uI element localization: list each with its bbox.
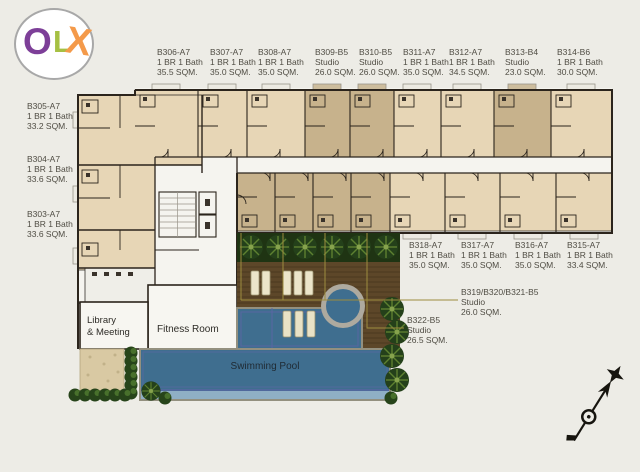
unit-type: Studio xyxy=(505,57,546,67)
unit-type: 1 BR 1 Bath xyxy=(27,164,73,174)
compass-icon xyxy=(563,361,629,450)
unit-type: Studio xyxy=(461,297,539,307)
unit-type: 1 BR 1 Bath xyxy=(403,57,449,67)
unit-type: 1 BR 1 Bath xyxy=(157,57,203,67)
unit-type: 1 BR 1 Bath xyxy=(27,111,73,121)
fitness-room-area xyxy=(148,285,237,349)
unit-area: 23.0 SQM. xyxy=(505,67,546,77)
planter-row xyxy=(237,233,400,262)
unit-type: 1 BR 1 Bath xyxy=(557,57,603,67)
unit-label-b322: B322-B5 Studio 26.5 SQM. xyxy=(407,315,448,345)
unit-label-b318: B318-A7 1 BR 1 Bath 35.0 SQM. xyxy=(409,240,455,270)
unit-id: B310-B5 xyxy=(359,47,400,57)
unit-label-b309: B309-B5 Studio 26.0 SQM. xyxy=(315,47,356,77)
unit-area: 26.0 SQM. xyxy=(461,307,539,317)
unit-id: B322-B5 xyxy=(407,315,448,325)
unit-type: 1 BR 1 Bath xyxy=(515,250,561,260)
swimming-pool-label: Swimming Pool xyxy=(200,361,330,372)
unit-label-b307: B307-A7 1 BR 1 Bath 35.0 SQM. xyxy=(210,47,256,77)
unit-area: 33.6 SQM. xyxy=(27,229,73,239)
unit-label-b315: B315-A7 1 BR 1 Bath 33.4 SQM. xyxy=(567,240,613,270)
unit-id: B316-A7 xyxy=(515,240,561,250)
unit-id: B312-A7 xyxy=(449,47,495,57)
unit-area: 35.0 SQM. xyxy=(210,67,256,77)
unit-type: Studio xyxy=(359,57,400,67)
unit-label-b304: B304-A7 1 BR 1 Bath 33.6 SQM. xyxy=(27,154,73,184)
unit-label-b308: B308-A7 1 BR 1 Bath 35.0 SQM. xyxy=(258,47,304,77)
unit-id: B304-A7 xyxy=(27,154,73,164)
unit-area: 34.5 SQM. xyxy=(449,67,495,77)
unit-label-b303: B303-A7 1 BR 1 Bath 33.6 SQM. xyxy=(27,209,73,239)
library-line2: & Meeting xyxy=(87,327,130,339)
unit-id: B317-A7 xyxy=(461,240,507,250)
unit-id: B306-A7 xyxy=(157,47,203,57)
unit-label-b305: B305-A7 1 BR 1 Bath 33.2 SQM. xyxy=(27,101,73,131)
unit-id: B308-A7 xyxy=(258,47,304,57)
in-pool-loungers xyxy=(283,311,315,337)
unit-label-b317: B317-A7 1 BR 1 Bath 35.0 SQM. xyxy=(461,240,507,270)
unit-area: 35.0 SQM. xyxy=(461,260,507,270)
library-meeting-label: Library & Meeting xyxy=(87,315,130,339)
unit-type: 1 BR 1 Bath xyxy=(449,57,495,67)
unit-area: 33.2 SQM. xyxy=(27,121,73,131)
unit-id: B318-A7 xyxy=(409,240,455,250)
unit-area: 33.4 SQM. xyxy=(567,260,613,270)
unit-area: 33.6 SQM. xyxy=(27,174,73,184)
unit-type: 1 BR 1 Bath xyxy=(409,250,455,260)
unit-type: 1 BR 1 Bath xyxy=(258,57,304,67)
unit-type: Studio xyxy=(315,57,356,67)
unit-area: 35.5 SQM. xyxy=(157,67,203,77)
unit-id: B319/B320/B321-B5 xyxy=(461,287,539,297)
unit-type: 1 BR 1 Bath xyxy=(27,219,73,229)
unit-id: B313-B4 xyxy=(505,47,546,57)
unit-area: 26.5 SQM. xyxy=(407,335,448,345)
olx-letter-o: O xyxy=(23,23,52,60)
unit-label-b319-b320-b321: B319/B320/B321-B5 Studio 26.0 SQM. xyxy=(461,287,539,317)
unit-id: B309-B5 xyxy=(315,47,356,57)
library-line1: Library xyxy=(87,315,130,327)
unit-label-b316: B316-A7 1 BR 1 Bath 35.0 SQM. xyxy=(515,240,561,270)
unit-type: Studio xyxy=(407,325,448,335)
unit-id: B314-B6 xyxy=(557,47,603,57)
unit-label-b310: B310-B5 Studio 26.0 SQM. xyxy=(359,47,400,77)
unit-id: B303-A7 xyxy=(27,209,73,219)
unit-area: 35.0 SQM. xyxy=(258,67,304,77)
unit-label-b313: B313-B4 Studio 23.0 SQM. xyxy=(505,47,546,77)
unit-label-b306: B306-A7 1 BR 1 Bath 35.5 SQM. xyxy=(157,47,203,77)
floorplan-image: O L X B306-A7 1 BR 1 Bath 35.5 SQM. B307… xyxy=(0,0,640,472)
unit-area: 35.0 SQM. xyxy=(409,260,455,270)
olx-letter-x: X xyxy=(63,21,94,62)
unit-area: 30.0 SQM. xyxy=(557,67,603,77)
unit-id: B305-A7 xyxy=(27,101,73,111)
unit-type: 1 BR 1 Bath xyxy=(567,250,613,260)
unit-area: 35.0 SQM. xyxy=(515,260,561,270)
unit-label-b311: B311-A7 1 BR 1 Bath 35.0 SQM. xyxy=(403,47,449,77)
unit-area: 26.0 SQM. xyxy=(359,67,400,77)
unit-label-b312: B312-A7 1 BR 1 Bath 34.5 SQM. xyxy=(449,47,495,77)
unit-area: 35.0 SQM. xyxy=(403,67,449,77)
unit-id: B315-A7 xyxy=(567,240,613,250)
unit-id: B307-A7 xyxy=(210,47,256,57)
unit-label-b314: B314-B6 1 BR 1 Bath 30.0 SQM. xyxy=(557,47,603,77)
spa-pool xyxy=(326,289,360,323)
fitness-room-label: Fitness Room xyxy=(157,324,219,335)
unit-id: B311-A7 xyxy=(403,47,449,57)
unit-area: 26.0 SQM. xyxy=(315,67,356,77)
unit-type: 1 BR 1 Bath xyxy=(210,57,256,67)
unit-type: 1 BR 1 Bath xyxy=(461,250,507,260)
olx-logo: O L X xyxy=(14,8,94,80)
